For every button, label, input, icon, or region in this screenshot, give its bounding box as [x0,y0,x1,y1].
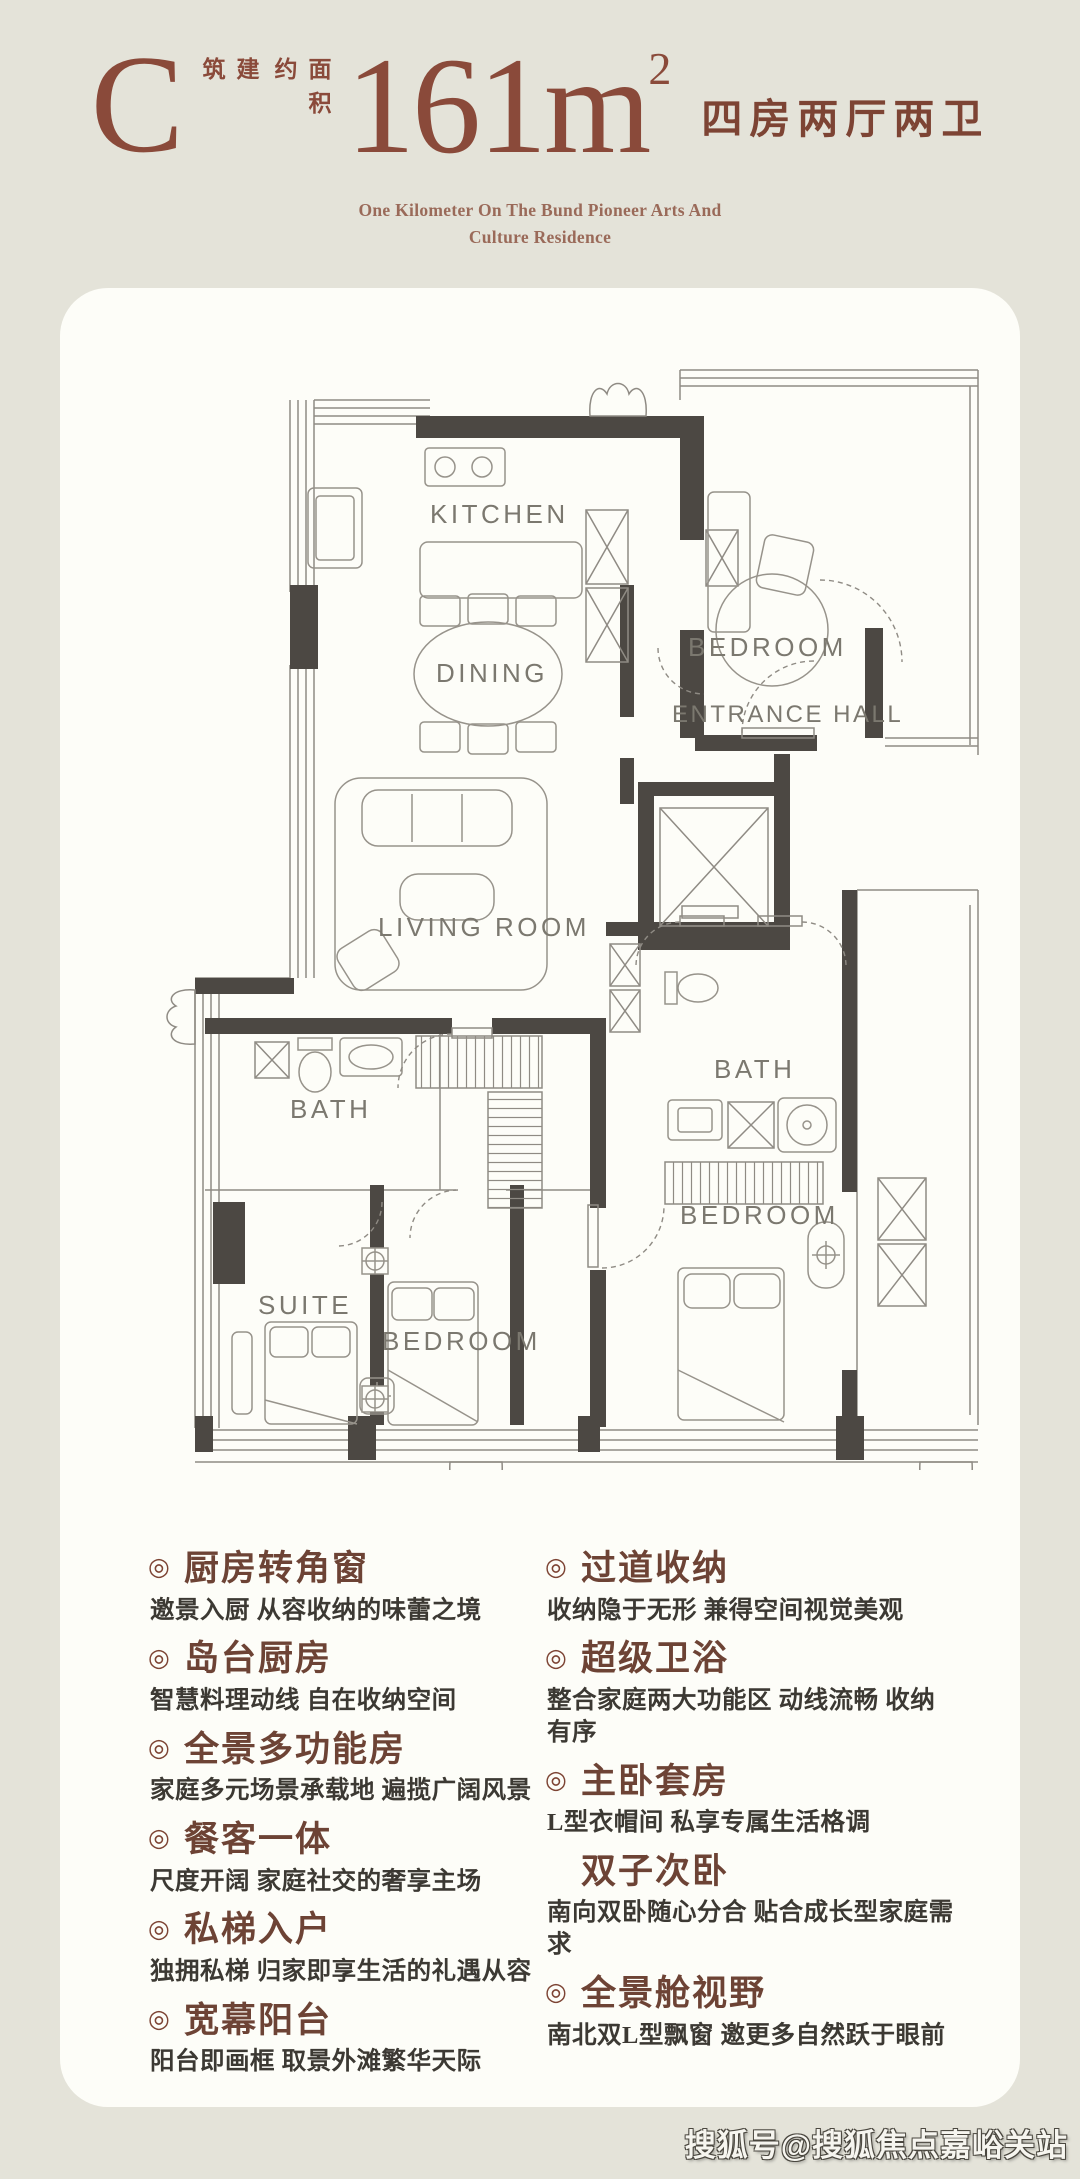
unit-letter: C [91,50,184,159]
bullseye-icon: ◎ [545,1643,581,1673]
room-label-kitchen: KITCHEN [430,499,569,529]
feature-desc: 整合家庭两大功能区 动线流畅 收纳有序 [547,1685,958,1749]
room-label-living-room: LIVING ROOM [378,912,590,942]
feature-title: 岛台厨房 [184,1640,332,1679]
room-label-bath-left: BATH [290,1094,371,1124]
feature-column-left: ◎厨房转角窗 邀景入厨 从容收纳的味蕾之境 ◎岛台厨房 智慧料理动线 自在收纳空… [148,1550,545,2092]
feature-item: 双子次卧 南向双卧随心分合 贴合成长型家庭需求 [545,1853,958,1971]
feature-title: 全景多功能房 [184,1731,406,1770]
feature-title: 私梯入户 [184,1911,332,1950]
feature-list: ◎厨房转角窗 邀景入厨 从容收纳的味蕾之境 ◎岛台厨房 智慧料理动线 自在收纳空… [148,1550,958,2092]
bullseye-icon: ◎ [148,1552,184,1582]
feature-item: ◎餐客一体 尺度开阔 家庭社交的奢享主场 [148,1821,545,1907]
sohu-watermark: 搜狐号@搜狐焦点嘉峪关站 [685,2120,1068,2165]
subtitle-line1: One Kilometer On The Bund Pioneer Arts A… [0,197,1080,224]
room-label-entrance-hall: ENTRANCE HALL [672,701,903,728]
bullseye-icon: ◎ [148,1733,184,1763]
feature-title: 宽幕阳台 [184,2002,332,2041]
feature-item: ◎过道收纳 收纳隐于无形 兼得空间视觉美观 [545,1550,958,1636]
room-labels: KITCHEN DINING BEDROOM ENTRANCE HALL LIV… [258,499,903,1356]
feature-title: 全景舱视野 [581,1975,766,2014]
bullseye-icon: ◎ [148,1643,184,1673]
room-label-bedroom-top: BEDROOM [688,632,847,662]
room-label-suite: SUITE [258,1290,352,1320]
room-label-dining: DINING [436,658,548,688]
feature-desc: 阳台即画框 取景外滩繁华天际 [150,2046,545,2078]
feature-column-right: ◎过道收纳 收纳隐于无形 兼得空间视觉美观 ◎超级卫浴 整合家庭两大功能区 动线… [545,1550,958,2092]
feature-desc: 收纳隐于无形 兼得空间视觉美观 [547,1595,958,1627]
feature-item: ◎全景多功能房 家庭多元场景承载地 遍揽广阔风景 [148,1731,545,1817]
header: C 建筑 面积约 161m2 四房两厅两卫 [0,50,1080,159]
feature-item: ◎宽幕阳台 阳台即画框 取景外滩繁华天际 [148,2002,545,2088]
subtitle-line2: Culture Residence [0,224,1080,251]
feature-desc: L型衣帽间 私享专属生活格调 [547,1807,958,1839]
feature-item: ◎岛台厨房 智慧料理动线 自在收纳空间 [148,1640,545,1726]
feature-desc: 南向双卧随心分合 贴合成长型家庭需求 [547,1897,958,1961]
room-label-bedroom-right: BEDROOM [680,1200,839,1230]
area-label-col1: 建筑 [194,57,262,149]
floor-plan: KITCHEN DINING BEDROOM ENTRANCE HALL LIV… [120,330,1000,1470]
area-label-col2: 面积约 [266,57,334,149]
area-superscript: 2 [648,43,671,94]
bullseye-icon: ◎ [545,1552,581,1582]
feature-desc: 独拥私梯 归家即享生活的礼遇从容 [150,1956,545,1988]
bullseye-icon: ◎ [545,1765,581,1795]
feature-item: ◎厨房转角窗 邀景入厨 从容收纳的味蕾之境 [148,1550,545,1636]
bullseye-icon: ◎ [148,2004,184,2034]
feature-title: 过道收纳 [581,1550,729,1589]
feature-item: ◎全景舱视野 南北双L型飘窗 邀更多自然跃于眼前 [545,1975,958,2061]
feature-title: 双子次卧 [581,1853,729,1892]
feature-desc: 邀景入厨 从容收纳的味蕾之境 [150,1595,545,1627]
feature-title: 厨房转角窗 [184,1550,369,1589]
feature-title: 主卧套房 [581,1763,729,1802]
feature-desc: 智慧料理动线 自在收纳空间 [150,1685,545,1717]
room-label-bedroom-mid: BEDROOM [382,1326,541,1356]
feature-item: ◎主卧套房 L型衣帽间 私享专属生活格调 [545,1763,958,1849]
elevator [660,808,768,926]
floorplan-card: KITCHEN DINING BEDROOM ENTRANCE HALL LIV… [60,288,1020,2107]
subtitle: One Kilometer On The Bund Pioneer Arts A… [0,197,1080,251]
feature-item: ◎私梯入户 独拥私梯 归家即享生活的礼遇从容 [148,1911,545,1997]
room-label-bath-right: BATH [714,1054,795,1084]
feature-item: ◎超级卫浴 整合家庭两大功能区 动线流畅 收纳有序 [545,1640,958,1758]
area-label-vertical: 建筑 面积约 [194,57,334,149]
feature-title: 餐客一体 [184,1821,332,1860]
feature-desc: 尺度开阔 家庭社交的奢享主场 [150,1866,545,1898]
area-number: 161m [346,29,648,182]
layout-label: 四房两厅两卫 [701,85,989,145]
bullseye-icon: ◎ [148,1914,184,1944]
feature-title: 超级卫浴 [581,1640,729,1679]
bullseye-icon: ◎ [545,1977,581,2007]
feature-desc: 家庭多元场景承载地 遍揽广阔风景 [150,1775,545,1807]
bullseye-icon: ◎ [148,1823,184,1853]
area-value: 161m2 [346,52,671,160]
feature-desc: 南北双L型飘窗 邀更多自然跃于眼前 [547,2020,958,2052]
